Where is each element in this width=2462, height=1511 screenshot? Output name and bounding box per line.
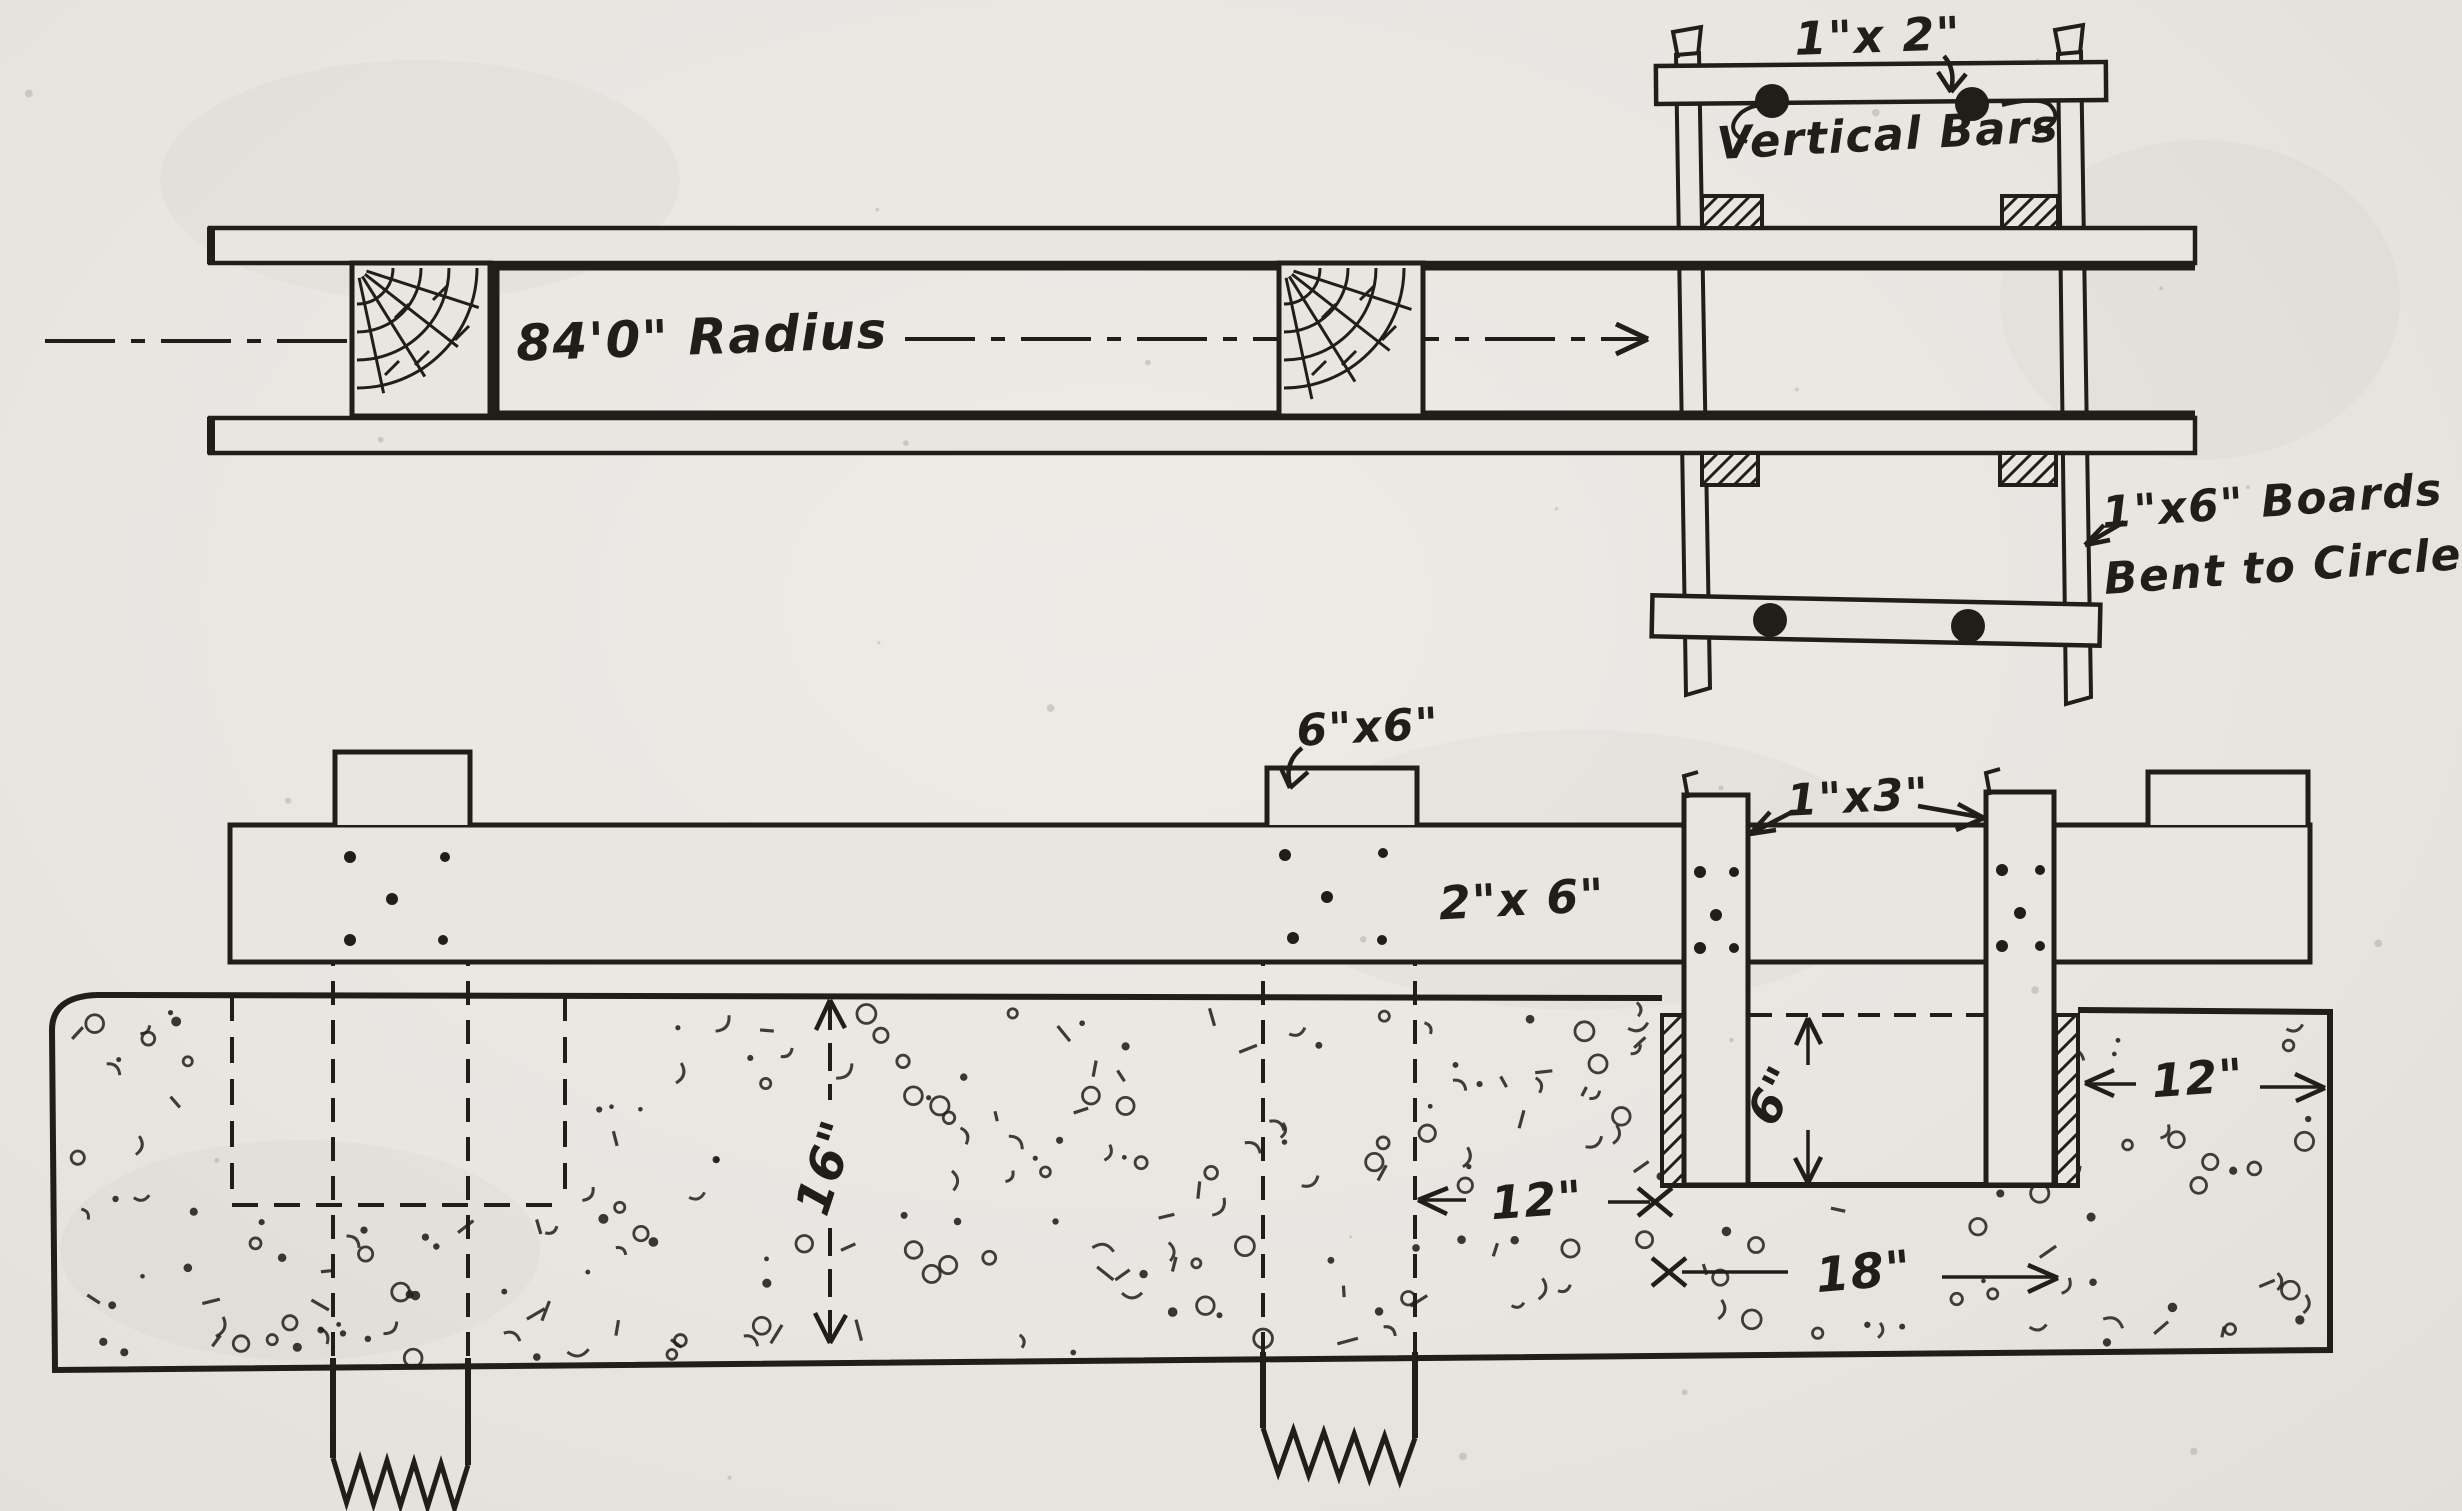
strip-right xyxy=(1986,792,2054,1185)
aggregate-curl xyxy=(1289,1028,1305,1036)
aggregate-fleck xyxy=(1159,1214,1175,1218)
aggregate-curl xyxy=(1637,1002,1641,1016)
aggregate-dot xyxy=(598,1214,608,1224)
aggregate-fleck xyxy=(1337,1338,1358,1344)
aggregate-curl xyxy=(1512,1303,1524,1308)
dim16-label: 16" xyxy=(785,1113,868,1222)
scanned-drawing-page: 1"x 2" Vertical Bars 84'0" Radius 1"x6" … xyxy=(0,0,2462,1511)
aggregate-fleck xyxy=(1074,1108,1088,1113)
dim12R-label: 12" xyxy=(2150,1048,2246,1108)
aggregate-fleck xyxy=(1582,1087,1587,1096)
aggregate-pebble xyxy=(1083,1087,1100,1104)
aggregate-pebble xyxy=(1812,1328,1822,1338)
aggregate-pebble xyxy=(905,1087,923,1105)
aggregate-dot xyxy=(1864,1322,1870,1328)
aggregate-dot xyxy=(762,1279,771,1288)
vertical-bar-dot xyxy=(1951,609,1985,643)
radius-label: 84'0" Radius xyxy=(515,302,888,373)
aggregate-fleck xyxy=(1535,1071,1552,1073)
aggregate-curl xyxy=(2030,1324,2047,1330)
aggregate-curl xyxy=(1302,1176,1318,1187)
aggregate-dot xyxy=(1981,1279,1986,1284)
aggregate-pebble xyxy=(1192,1259,1201,1268)
aggregate-curl xyxy=(504,1332,520,1341)
aggregate-pebble xyxy=(940,1256,957,1273)
aggregate-dot xyxy=(638,1107,643,1112)
paper-speck xyxy=(1349,1235,1352,1238)
paper-speck xyxy=(1360,936,1366,942)
paper-speck xyxy=(2036,58,2040,62)
aggregate-pebble xyxy=(2123,1140,2133,1150)
dim12L-label: 12" xyxy=(1489,1170,1585,1230)
aggregate-pebble xyxy=(2169,1132,2185,1148)
aggregate-dot xyxy=(1375,1307,1383,1315)
aggregate-pebble xyxy=(905,1242,922,1259)
aggregate-pebble xyxy=(1951,1293,1962,1304)
aggregate-dot xyxy=(340,1330,346,1336)
paper-speck xyxy=(25,90,33,98)
aggregate-dot xyxy=(649,1237,659,1247)
aggregate-dot xyxy=(259,1219,265,1225)
aggregate-dot xyxy=(901,1212,908,1219)
aggregate-dot xyxy=(1216,1312,1222,1318)
aggregate-dot xyxy=(140,1274,145,1279)
aggregate-dot xyxy=(2087,1213,2096,1222)
aggregate-dot xyxy=(2112,1052,2117,1057)
aggregate-dot xyxy=(2229,1167,2237,1175)
aggregate-curl xyxy=(1878,1323,1883,1338)
aggregate-dot xyxy=(960,1073,967,1080)
paper-speck xyxy=(378,437,384,443)
aggregate-curl xyxy=(1104,1145,1111,1161)
aggregate-dot xyxy=(1122,1042,1130,1050)
paper-speck xyxy=(1459,1452,1467,1460)
aggregate-pebble xyxy=(2283,1040,2294,1051)
aggregate-fleck xyxy=(72,1027,83,1039)
aggregate-dot xyxy=(2168,1303,2178,1313)
aggregate-fleck xyxy=(2259,1280,2274,1286)
aggregate-curl xyxy=(1539,1278,1546,1299)
batten-bottom xyxy=(1652,595,2101,645)
bent-board-right-section xyxy=(2056,1015,2078,1185)
aggregate-fleck xyxy=(1831,1208,1845,1211)
aggregate-pebble xyxy=(1458,1178,1472,1192)
aggregate-dot xyxy=(433,1243,439,1249)
aggregate-dot xyxy=(1056,1137,1063,1144)
aggregate-curl xyxy=(952,1171,958,1190)
aggregate-fleck xyxy=(1343,1286,1344,1297)
aggregate-dot xyxy=(501,1289,507,1295)
aggregate-curl xyxy=(836,1063,852,1078)
section-view: 6"x6" 2"x 6" 1"x3" 16" 6" 12" xyxy=(52,698,2330,1508)
dimension-outer-offset: 12" xyxy=(2085,1048,2325,1108)
aggregate-pebble xyxy=(2225,1324,2236,1335)
aggregate-dot xyxy=(1722,1227,1732,1237)
aggregate-pebble xyxy=(1235,1237,1254,1256)
aggregate-curl xyxy=(2103,1318,2123,1328)
aggregate-pebble xyxy=(1377,1137,1389,1149)
dimension-slab-depth: 16" xyxy=(785,1000,868,1343)
aggregate-curl xyxy=(1384,1327,1396,1336)
aggregate-curl xyxy=(1212,1198,1224,1215)
aggregate-dot xyxy=(168,1010,173,1015)
aggregate-dot xyxy=(609,1104,614,1109)
aggregate-dot xyxy=(1033,1156,1038,1161)
paper-speck xyxy=(1795,388,1799,392)
aggregate-dot xyxy=(360,1227,367,1234)
aggregate-fleck xyxy=(856,1320,862,1341)
aggregate-curl xyxy=(1269,1121,1283,1131)
aggregate-fleck xyxy=(841,1244,855,1250)
aggregate-curl xyxy=(1169,1243,1174,1261)
technical-drawing: 1"x 2" Vertical Bars 84'0" Radius 1"x6" … xyxy=(0,0,2462,1511)
paper-speck xyxy=(285,798,291,804)
aggregate-fleck xyxy=(1493,1243,1497,1256)
paper-speck xyxy=(875,208,879,212)
aggregate-pebble xyxy=(1613,1108,1631,1126)
aggregate-dot xyxy=(596,1106,602,1112)
aggregate-curl xyxy=(676,1063,684,1083)
aggregate-dot xyxy=(1070,1350,1076,1356)
right-end-block xyxy=(2148,772,2308,825)
aggregate-dot xyxy=(675,1025,680,1030)
aggregate-dot xyxy=(1079,1020,1085,1026)
paper-speck xyxy=(1145,360,1151,366)
bent-boards-label-line2: Bent to Circle xyxy=(2102,529,2462,605)
aggregate-dot xyxy=(1412,1244,1420,1252)
aggregate-dot xyxy=(533,1353,541,1361)
aggregate-dot xyxy=(714,1157,720,1163)
paper-speck xyxy=(1555,507,1558,510)
aggregate-dot xyxy=(120,1348,128,1356)
aggregate-dot xyxy=(764,1256,769,1261)
aggregate-fleck xyxy=(537,1219,541,1233)
aggregate-dot xyxy=(2305,1116,2311,1122)
aggregate-pebble xyxy=(2191,1178,2207,1194)
aggregate-fleck xyxy=(760,1030,774,1031)
aggregate-pebble xyxy=(615,1202,625,1212)
paper-speck xyxy=(1047,704,1055,712)
aggregate-curl xyxy=(1558,1285,1570,1292)
aggregate-fleck xyxy=(171,1097,180,1108)
aggregate-fleck xyxy=(1501,1076,1507,1087)
bottom-rail-board xyxy=(210,418,2195,453)
post-left-top xyxy=(335,752,470,825)
post-left-below-slab xyxy=(333,1358,468,1465)
aggregate-dot xyxy=(954,1218,962,1226)
aggregate-curl xyxy=(1453,1080,1466,1090)
aggregate-dot xyxy=(1996,1189,2004,1197)
post-middle-below-slab xyxy=(1263,1352,1415,1438)
aggregate-dot xyxy=(1510,1236,1518,1244)
aggregate-curl xyxy=(961,1128,968,1144)
aggregate-pebble xyxy=(931,1097,949,1115)
aggregate-fleck xyxy=(1519,1110,1524,1128)
aggregate-fleck xyxy=(1634,1162,1649,1172)
aggregate-curl xyxy=(716,1015,729,1031)
aggregate-pebble xyxy=(2203,1154,2218,1169)
aggregate-curl xyxy=(781,1048,792,1057)
aggregate-pebble xyxy=(1742,1310,1761,1329)
paper-speck xyxy=(2190,1448,2197,1455)
paper-speck xyxy=(1718,785,1723,790)
aggregate-pebble xyxy=(1748,1238,1763,1253)
paper-speck xyxy=(2159,286,2163,290)
aggregate-pebble xyxy=(142,1032,155,1045)
aggregate-curl xyxy=(689,1192,704,1199)
aggregate-curl xyxy=(2287,1024,2303,1031)
bent-board-left-section xyxy=(1662,1015,1684,1185)
wale-size-label: 2"x 6" xyxy=(1437,868,1606,931)
paper-speck xyxy=(877,641,880,644)
dim18-label: 18" xyxy=(1813,1240,1914,1304)
aggregate-curl xyxy=(1122,1293,1142,1298)
paper-speck xyxy=(727,1476,731,1480)
aggregate-curl xyxy=(1092,1244,1113,1251)
aggregate-dot xyxy=(2089,1278,2097,1286)
aggregate-pebble xyxy=(753,1317,770,1334)
aggregate-curl xyxy=(2303,1295,2309,1313)
post-size-label: 6"x6" xyxy=(1295,698,1440,756)
aggregate-pebble xyxy=(2295,1132,2313,1150)
aggregate-curl xyxy=(136,1136,142,1154)
paper-speck xyxy=(2031,986,2039,994)
aggregate-curl xyxy=(616,1247,626,1254)
aggregate-fleck xyxy=(1209,1008,1214,1026)
aggregate-pebble xyxy=(857,1004,876,1023)
aggregate-pebble xyxy=(1970,1219,1986,1235)
aggregate-dot xyxy=(1315,1042,1322,1049)
aggregate-dot xyxy=(1457,1235,1466,1244)
aggregate-fleck xyxy=(1239,1045,1257,1052)
aggregate-dot xyxy=(1899,1324,1905,1330)
aggregate-fleck xyxy=(2040,1246,2056,1257)
paper-speck xyxy=(1879,781,1883,785)
aggregate-curl xyxy=(1005,1171,1013,1182)
aggregate-pebble xyxy=(1419,1125,1435,1141)
aggregate-pebble xyxy=(1117,1097,1134,1114)
aggregate-pebble xyxy=(1008,1009,1017,1018)
aggregate-dot xyxy=(1168,1307,1178,1317)
aggregate-dot xyxy=(1122,1155,1127,1160)
aggregate-pebble xyxy=(667,1350,677,1360)
aggregate-fleck xyxy=(1198,1181,1200,1198)
aggregate-dot xyxy=(1139,1270,1147,1278)
aggregate-pebble xyxy=(1575,1022,1594,1041)
aggregate-dot xyxy=(585,1270,590,1275)
aggregate-fleck xyxy=(771,1325,782,1343)
aggregate-dot xyxy=(278,1253,286,1261)
aggregate-curl xyxy=(1718,1300,1725,1319)
aggregate-dot xyxy=(171,1017,181,1027)
paper-speck xyxy=(2374,940,2382,948)
aggregate-curl xyxy=(1245,1142,1260,1153)
aggregate-dot xyxy=(1466,1164,1471,1169)
aggregate-dot xyxy=(112,1196,118,1202)
aggregate-dot xyxy=(1453,1062,1459,1068)
top-rail-board xyxy=(210,228,2195,263)
aggregate-pebble xyxy=(2248,1162,2261,1175)
strip-size-label: 1"x3" xyxy=(1785,768,1930,826)
aggregate-dot xyxy=(2295,1315,2304,1324)
aggregate-dot xyxy=(1282,1139,1287,1144)
aggregate-pebble xyxy=(897,1055,909,1067)
aggregate-pebble xyxy=(1041,1167,1051,1177)
batten-size-label: 1"x 2" xyxy=(1794,6,1962,66)
aggregate-curl xyxy=(1009,1136,1022,1149)
dim18-x-mark xyxy=(1652,1258,1686,1286)
aggregate-dot xyxy=(293,1343,302,1352)
aggregate-pebble xyxy=(634,1226,648,1240)
aggregate-fleck xyxy=(1058,1026,1070,1041)
aggregate-pebble xyxy=(1589,1055,1607,1073)
aggregate-dot xyxy=(190,1208,198,1216)
aggregate-curl xyxy=(1589,1091,1599,1099)
aggregate-pebble xyxy=(2282,1281,2300,1299)
aggregate-dot xyxy=(1327,1257,1334,1264)
aggregate-pebble xyxy=(1379,1011,1389,1021)
aggregate-pebble xyxy=(1205,1166,1218,1179)
aggregate-dot xyxy=(411,1291,421,1301)
aggregate-dot xyxy=(116,1057,121,1062)
aggregate-pebble xyxy=(71,1151,84,1164)
aggregate-dot xyxy=(1476,1081,1482,1087)
aggregate-dot xyxy=(336,1322,341,1327)
aggregate-fleck xyxy=(616,1320,619,1335)
post-left-break-zigzag xyxy=(333,1458,468,1508)
batten-top xyxy=(1656,62,2106,104)
aggregate-fleck xyxy=(1093,1061,1096,1077)
aggregate-curl xyxy=(1424,1023,1431,1034)
aggregate-pebble xyxy=(983,1251,996,1264)
paper-speck xyxy=(1872,109,1880,117)
aggregate-curl xyxy=(744,1336,758,1347)
aggregate-pebble xyxy=(1988,1289,1998,1299)
aggregate-curl xyxy=(1628,1023,1648,1031)
dimension-inner-offset: 12" xyxy=(1418,1170,1672,1230)
aggregate-dot xyxy=(1052,1218,1058,1224)
aggregate-curl xyxy=(107,1064,120,1075)
aggregate-pebble xyxy=(1366,1153,1383,1170)
aggregate-fleck xyxy=(1117,1070,1124,1081)
aggregate-pebble xyxy=(1562,1240,1579,1257)
vertical-bar-dot xyxy=(1753,603,1787,637)
paper-speck xyxy=(903,440,909,446)
aggregate-curl xyxy=(2160,1125,2169,1139)
aggregate-curl xyxy=(545,1226,557,1233)
aggregate-pebble xyxy=(1197,1297,1215,1315)
aggregate-fleck xyxy=(995,1111,997,1121)
aggregate-curl xyxy=(567,1349,588,1356)
aggregate-pebble xyxy=(923,1265,940,1282)
aggregate-pebble xyxy=(1637,1232,1653,1248)
aggregate-dot xyxy=(926,1095,931,1100)
aggregate-pebble xyxy=(761,1078,771,1088)
paper-speck xyxy=(1682,1389,1688,1395)
aggregate-fleck xyxy=(613,1131,617,1146)
bent-boards-label-line1: 1"x6" Boards xyxy=(2100,464,2444,539)
aggregate-fleck xyxy=(1097,1267,1113,1280)
aggregate-dot xyxy=(99,1338,107,1346)
paper-speck xyxy=(214,1158,219,1163)
paper-speck xyxy=(1729,1038,1734,1043)
strip-left xyxy=(1684,795,1748,1185)
aggregate-curl xyxy=(582,1187,593,1200)
aggregate-fleck xyxy=(1115,1270,1129,1280)
aggregate-pebble xyxy=(1135,1157,1147,1169)
aggregate-curl xyxy=(1463,1147,1470,1166)
aggregate-curl xyxy=(1586,1136,1602,1147)
aggregate-dot xyxy=(184,1264,193,1273)
aggregate-dot xyxy=(2103,1338,2111,1346)
aggregate-dot xyxy=(2116,1038,2121,1043)
aggregate-dot xyxy=(108,1301,116,1309)
aggregate-dot xyxy=(1526,1015,1535,1024)
aggregate-dot xyxy=(365,1336,371,1342)
aggregate-dot xyxy=(747,1055,753,1061)
paper-speck xyxy=(2246,485,2250,489)
aggregate-curl xyxy=(1536,1078,1542,1093)
aggregate-pebble xyxy=(183,1057,192,1066)
aggregate-fleck xyxy=(2154,1322,2168,1334)
post-middle-break-zigzag xyxy=(1263,1428,1415,1481)
aggregate-pebble xyxy=(86,1015,104,1033)
aggregate-fleck xyxy=(321,1271,333,1272)
aggregate-curl xyxy=(1613,1125,1620,1143)
aggregate-pebble xyxy=(874,1028,888,1042)
aggregate-curl xyxy=(1020,1335,1024,1348)
aggregate-pebble xyxy=(796,1235,813,1252)
aggregate-dot xyxy=(1428,1104,1433,1109)
aggregate-dot xyxy=(422,1233,429,1240)
aggregate-curl xyxy=(2062,1278,2071,1293)
